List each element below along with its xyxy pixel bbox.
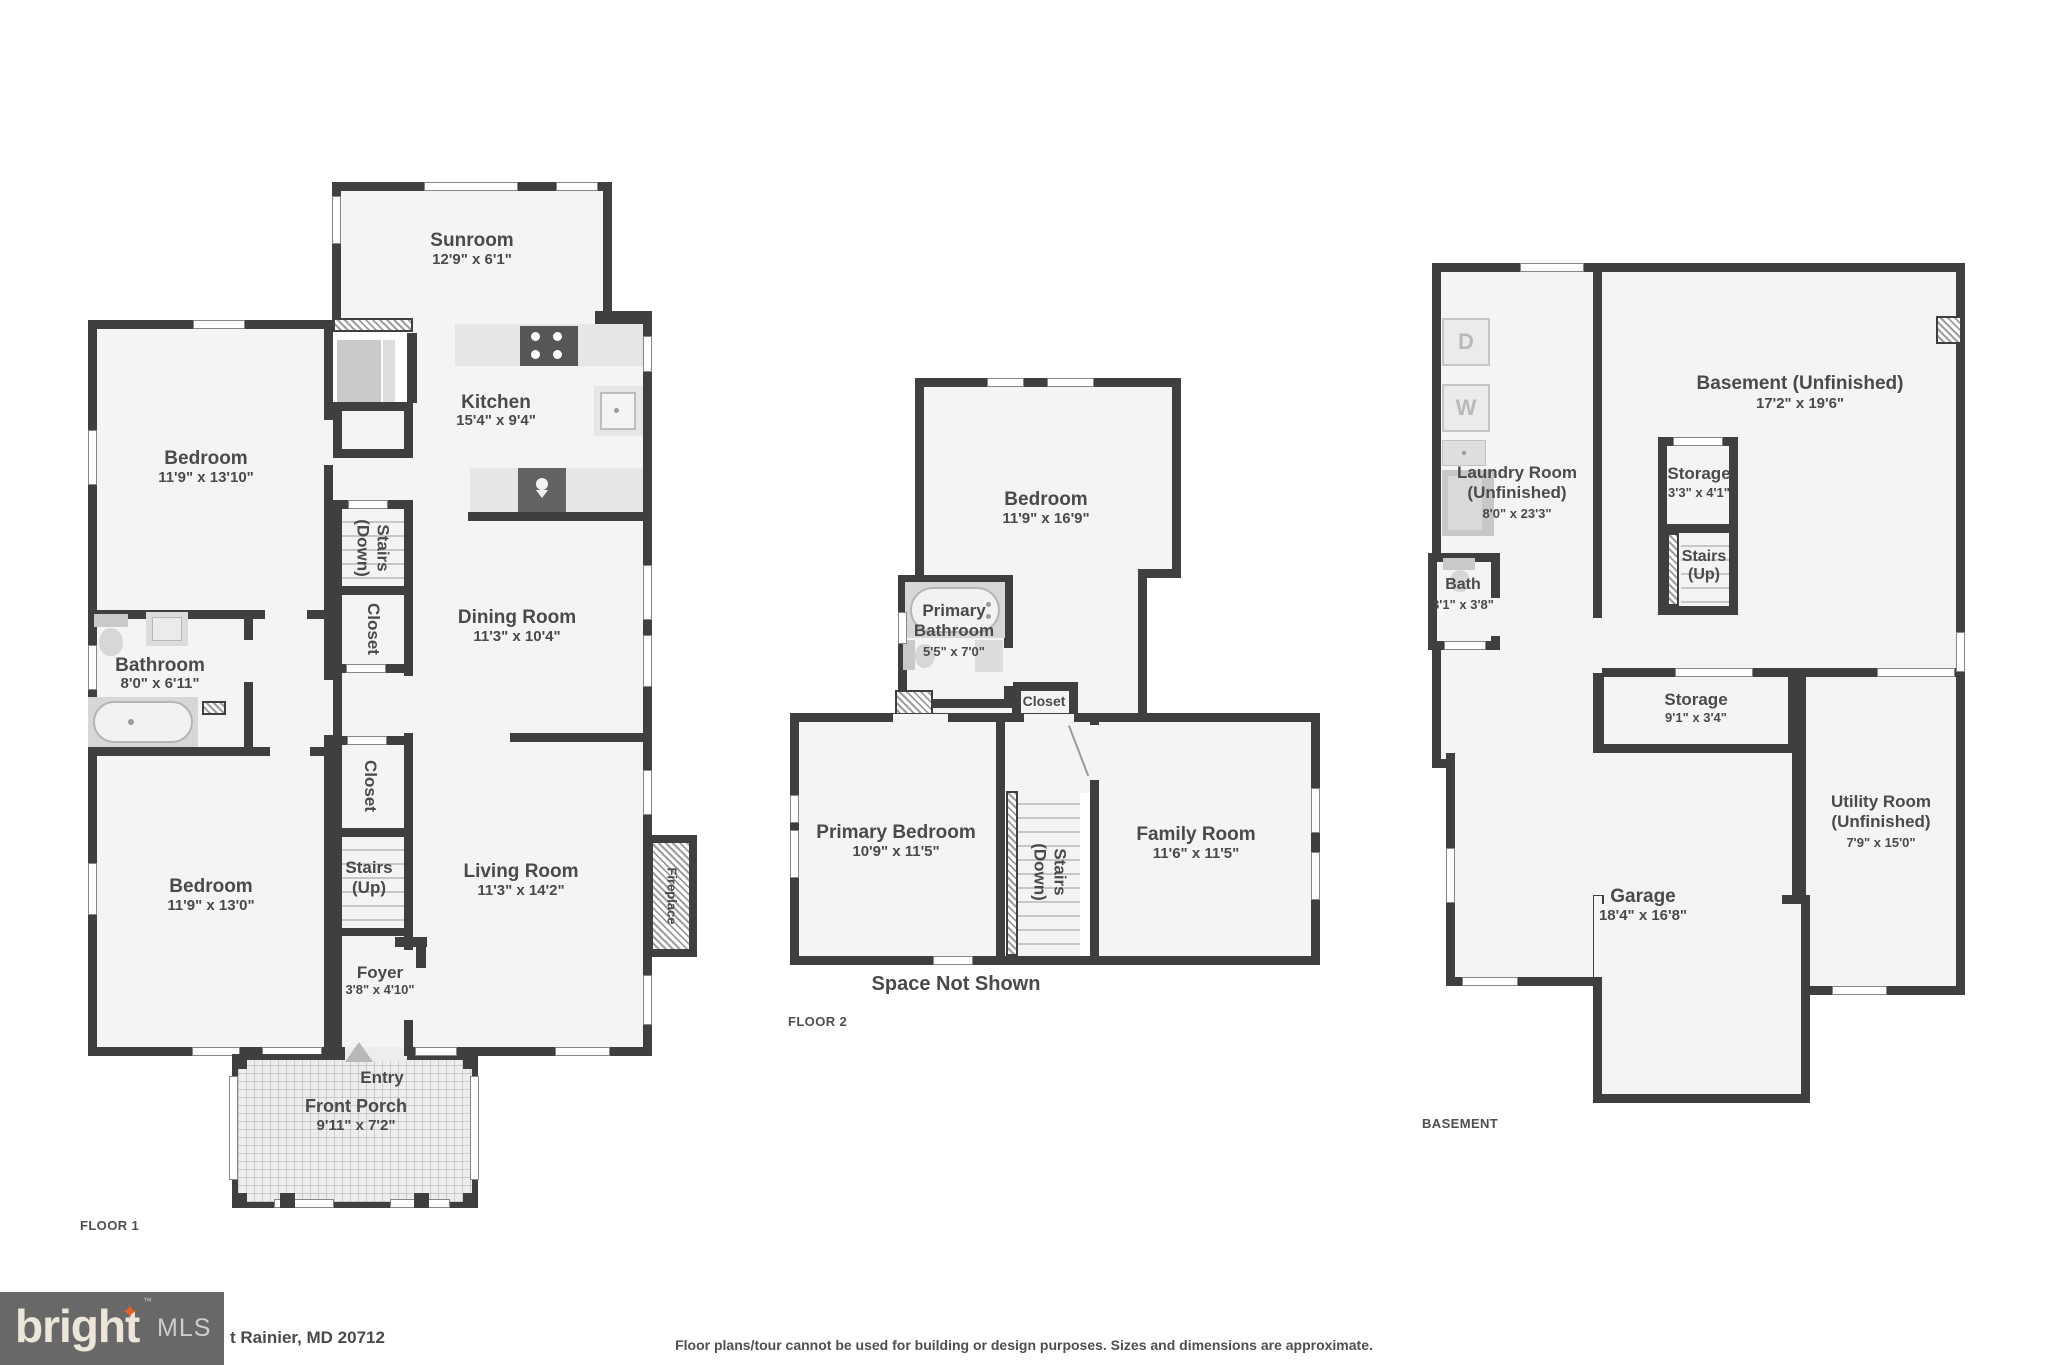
room-label: Stairs (Down) [353, 515, 392, 581]
room-dim: 10'9" x 11'5" [852, 844, 939, 861]
room-label: Stairs (Up) [340, 858, 398, 897]
wall [307, 610, 333, 619]
window [643, 635, 652, 687]
wall [407, 333, 417, 403]
room-dim: 17'2" x 19'6" [1756, 396, 1844, 413]
toilet-bowl [99, 628, 123, 656]
room-label: Closet [363, 603, 383, 655]
room-dim: 11'9" x 13'10" [158, 470, 254, 487]
stove-burner [553, 350, 562, 359]
opening [1604, 977, 1782, 986]
window [1311, 852, 1320, 900]
wall [253, 747, 270, 756]
faucet [614, 408, 619, 413]
room-label: Sunroom [430, 230, 513, 252]
bright-mls-logo: bright ✦ ™ MLS [0, 1292, 224, 1365]
room-dim: 11'9" x 16'9" [1002, 511, 1089, 528]
window [790, 830, 799, 878]
porch-post [414, 1193, 429, 1208]
room-label: Stairs (Down) [1030, 839, 1069, 905]
stove-burner [531, 350, 540, 359]
room-dim: 12'9" x 6'1" [432, 252, 512, 269]
room-label: Foyer [357, 963, 403, 983]
window [88, 430, 97, 485]
door-opening [244, 640, 253, 682]
room-label: Primary Bathroom [906, 601, 1002, 640]
window [1877, 668, 1955, 677]
window [332, 196, 341, 244]
toilet-tank [94, 614, 128, 627]
room-dim: 9'1" x 3'4" [1665, 711, 1727, 725]
wall-dining-living [510, 733, 652, 742]
room-label: Utility Room (Unfinished) [1816, 792, 1946, 831]
window [1673, 437, 1723, 446]
dishwasher-pin-tip [536, 490, 548, 498]
window [555, 1047, 610, 1056]
wall [1005, 956, 1090, 965]
room-label: Garage [1610, 886, 1675, 908]
door-opening [324, 680, 333, 735]
window [1444, 641, 1486, 650]
room-dim: 18'4" x 16'8" [1599, 908, 1687, 925]
room-label: Fireplace [664, 867, 679, 924]
door-opening [1004, 648, 1013, 686]
address-text: t Rainier, MD 20712 [230, 1328, 385, 1348]
door-opening [1593, 618, 1602, 673]
window [193, 320, 245, 329]
porch-rail [470, 1076, 479, 1180]
washer: W [1442, 384, 1490, 432]
disclaimer-text: Floor plans/tour cannot be used for buil… [675, 1337, 1373, 1353]
entry-arrow-icon [345, 1042, 373, 1062]
space-not-shown-label: Space Not Shown [872, 973, 1041, 996]
room-label: Family Room [1136, 824, 1255, 846]
room-dim: 5'5" x 7'0" [923, 645, 985, 659]
refrigerator-door [383, 340, 395, 402]
basement-label: BASEMENT [1422, 1116, 1498, 1131]
room-label: Bedroom [1004, 489, 1087, 511]
bathroom-sink-bowl [152, 617, 182, 641]
window [643, 336, 652, 372]
window [1311, 788, 1320, 833]
room-dim: 9'11" x 7'2" [317, 1118, 396, 1135]
room-label: Dining Room [458, 607, 576, 629]
faucet [1462, 451, 1466, 455]
room-label: Kitchen [461, 392, 531, 414]
toilet-tank [1443, 558, 1475, 570]
porch-post [463, 1193, 478, 1208]
logo-star-icon: ✦ [121, 1300, 139, 1325]
room-label: Bedroom [169, 876, 252, 898]
room-label: Bathroom [115, 655, 205, 677]
window [933, 956, 973, 965]
door-opening [324, 420, 333, 465]
porch-post [232, 1193, 247, 1208]
door-opening [1024, 714, 1074, 722]
room-dim: 15'4" x 9'4" [456, 413, 536, 430]
floor1-label: FLOOR 1 [80, 1218, 139, 1233]
window [1832, 986, 1887, 995]
room-label: Front Porch [305, 1096, 407, 1117]
window [643, 770, 652, 815]
window [1446, 848, 1455, 903]
wall-foyer [416, 937, 426, 968]
hall-fill [333, 458, 413, 505]
room-dim: 3'1" x 3'8" [1432, 598, 1494, 612]
entry-label: Entry [360, 1068, 403, 1088]
room-garage-lower [1593, 895, 1810, 1103]
wall [310, 747, 333, 756]
room-basement-main [1593, 263, 1965, 682]
window [1956, 632, 1965, 672]
floor2-label: FLOOR 2 [788, 1014, 847, 1029]
window [346, 664, 386, 673]
door-opening [893, 714, 948, 722]
stove-burner [553, 332, 562, 341]
room-label: Bedroom [164, 448, 247, 470]
room-label: Laundry Room (Unfinished) [1447, 463, 1587, 502]
window [790, 795, 799, 823]
room-dim: 11'9" x 13'0" [167, 898, 254, 915]
room-label: Living Room [463, 861, 578, 883]
room-dim: 11'6" x 11'5" [1153, 846, 1239, 863]
window [643, 975, 652, 1025]
porch-post [463, 1054, 478, 1069]
room-dim: 3'3" x 4'1" [1668, 486, 1730, 500]
room-label: Closet [360, 760, 380, 812]
porch-rail [229, 1076, 238, 1180]
room-dim: 11'3" x 10'4" [473, 629, 560, 646]
room-f2-bedroom-upper [915, 378, 1181, 578]
logo-mls-text: MLS [157, 1314, 211, 1343]
window [987, 378, 1024, 387]
window [1520, 263, 1584, 272]
refrigerator [337, 340, 381, 402]
window [88, 863, 97, 915]
room-dim: 8'0" x 6'11" [121, 676, 200, 693]
floorplan-canvas: Sunroom 12'9" x 6'1" Kitchen 15'4" x 9'4… [0, 0, 2048, 1365]
window [88, 645, 97, 690]
room-dim: 3'8" x 4'10" [345, 983, 414, 997]
toilet-tank [903, 640, 915, 670]
window [1675, 668, 1753, 677]
room-label: Basement (Unfinished) [1697, 373, 1904, 395]
dryer: D [1442, 318, 1490, 366]
room-pantry-closet [333, 402, 413, 458]
window [643, 565, 652, 620]
bathtub [93, 701, 193, 743]
door-opening [404, 676, 413, 733]
porch-post [280, 1193, 295, 1208]
wall-kitchen-dining [468, 512, 652, 521]
hatched-vent [1936, 316, 1962, 344]
window [1047, 378, 1094, 387]
room-label: Primary Bedroom [816, 822, 975, 844]
wall [595, 311, 652, 325]
wall [404, 1047, 415, 1056]
porch-post [232, 1054, 247, 1069]
window [556, 182, 598, 191]
room-dim: 8'0" x 23'3" [1482, 507, 1551, 521]
room-utility [1797, 668, 1965, 995]
stairs-hatch [1006, 791, 1018, 956]
wall [253, 610, 265, 619]
window [347, 736, 387, 745]
room-dim: 11'3" x 14'2" [477, 883, 564, 900]
floor-vent [202, 701, 226, 715]
window [424, 182, 518, 191]
door-opening [1090, 725, 1099, 780]
hall-fill [1005, 713, 1090, 793]
room-label: Bath [1445, 576, 1481, 594]
window [348, 500, 388, 509]
room-dim: 7'9" x 15'0" [1846, 836, 1915, 850]
stove-burner [531, 332, 540, 341]
logo-trademark: ™ [143, 1296, 152, 1306]
room-label: Stairs (Up) [1676, 548, 1732, 585]
dishwasher-pin-icon [536, 478, 548, 490]
window [1462, 977, 1518, 986]
room-label: Storage [1667, 464, 1730, 484]
window [415, 1047, 457, 1056]
room-label: Closet [1023, 693, 1066, 709]
stove [520, 326, 578, 366]
tub-drain [128, 719, 134, 725]
room-label: Storage [1664, 690, 1727, 710]
hatched-wall [333, 318, 413, 332]
